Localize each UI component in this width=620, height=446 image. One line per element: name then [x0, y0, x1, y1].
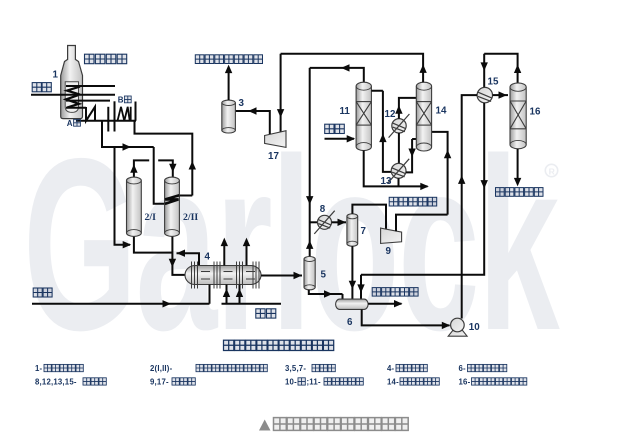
- svg-text:1: 1: [53, 70, 59, 81]
- svg-text:9,17-: 9,17-: [150, 377, 169, 386]
- svg-text:6-: 6-: [459, 364, 467, 373]
- svg-text:12: 12: [385, 109, 396, 120]
- svg-text:16: 16: [530, 107, 541, 118]
- svg-text:16-: 16-: [459, 377, 471, 386]
- svg-text:2/I: 2/I: [145, 212, 157, 223]
- svg-text:8: 8: [320, 204, 326, 215]
- svg-text:15: 15: [488, 77, 499, 88]
- svg-text:4: 4: [205, 252, 211, 263]
- svg-text:;11-: ;11-: [307, 377, 321, 386]
- svg-text:11: 11: [340, 106, 351, 117]
- svg-text:2/II: 2/II: [183, 212, 198, 223]
- svg-text:10: 10: [469, 322, 480, 333]
- svg-text:5: 5: [321, 270, 327, 281]
- svg-text:B: B: [118, 96, 124, 105]
- svg-text:10-: 10-: [285, 377, 297, 386]
- svg-text:4-: 4-: [387, 364, 395, 373]
- svg-text:6: 6: [347, 317, 353, 328]
- svg-text:14-: 14-: [387, 377, 399, 386]
- svg-text:1-: 1-: [35, 364, 43, 373]
- svg-text:3,5,7-: 3,5,7-: [285, 364, 306, 373]
- svg-text:7: 7: [361, 226, 367, 237]
- svg-text:R: R: [549, 166, 556, 176]
- svg-text:8,12,13,15-: 8,12,13,15-: [35, 377, 77, 386]
- svg-text:13: 13: [381, 176, 392, 187]
- svg-text:17: 17: [268, 151, 279, 162]
- svg-text:14: 14: [436, 106, 447, 117]
- svg-text:A: A: [67, 119, 73, 128]
- svg-text:2(I,II)-: 2(I,II)-: [150, 364, 173, 373]
- svg-text:9: 9: [386, 246, 392, 257]
- svg-text:3: 3: [239, 98, 245, 109]
